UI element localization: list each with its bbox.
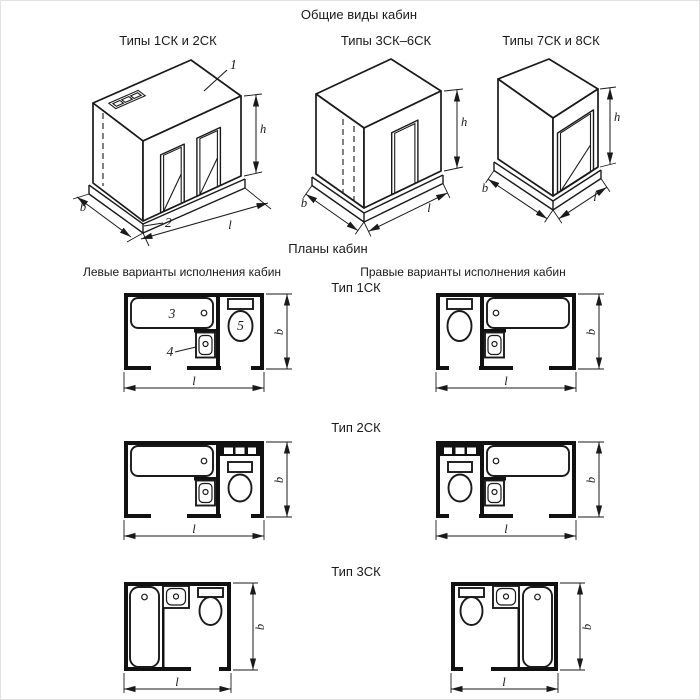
iso-view-types-3sk-6sk: h l b bbox=[291, 51, 476, 241]
dimension-width: b bbox=[266, 442, 292, 517]
plan-type-1sk-right: b l bbox=[426, 285, 616, 397]
dim-label-l: l bbox=[502, 675, 506, 689]
dim-label-h: h bbox=[614, 110, 620, 124]
iso-view-types-7sk-8sk: h b l bbox=[466, 51, 631, 236]
callout-label-2: 2 bbox=[165, 215, 172, 230]
dim-label-b: b bbox=[272, 329, 286, 335]
dimension-width: b bbox=[578, 294, 604, 369]
iso-heading-7sk-8sk: Типы 7СК и 8СК bbox=[502, 33, 600, 48]
plans-title: Планы кабин bbox=[288, 241, 367, 256]
dimension-length: l bbox=[451, 673, 558, 693]
dimension-height: h bbox=[600, 87, 620, 167]
type-2sk-heading: Тип 2СК bbox=[331, 420, 380, 435]
dim-label-b: b bbox=[80, 200, 86, 214]
dimension-width: b bbox=[578, 442, 604, 517]
dim-label-h: h bbox=[260, 122, 266, 136]
dimension-length: l bbox=[436, 520, 576, 540]
callout-label-4: 4 bbox=[167, 344, 174, 359]
dim-label-b: b bbox=[301, 196, 307, 210]
plan-type-3sk-left: b l bbox=[106, 576, 291, 698]
dim-label-b: b bbox=[584, 329, 598, 335]
dim-label-l: l bbox=[504, 522, 508, 536]
dim-label-l: l bbox=[504, 374, 508, 388]
iso-heading-3sk-6sk: Типы 3СК–6СК bbox=[341, 33, 431, 48]
callout-label-1: 1 bbox=[230, 57, 237, 72]
dim-label-b: b bbox=[584, 477, 598, 483]
dimension-length: l bbox=[124, 372, 264, 392]
cabin-box bbox=[93, 60, 241, 221]
dimension-length: l bbox=[436, 372, 576, 392]
iso-view-types-1sk-2sk: h l b 1 2 bbox=[56, 53, 286, 253]
dim-label-l: l bbox=[593, 190, 597, 204]
left-variants-heading: Левые варианты исполнения кабин bbox=[83, 265, 281, 279]
callout-label-5: 5 bbox=[237, 318, 244, 333]
dim-label-l: l bbox=[228, 218, 232, 232]
plan-type-1sk-left: 3 4 5 b l bbox=[106, 285, 296, 397]
type-3sk-heading: Тип 3СК bbox=[331, 564, 380, 579]
dim-label-b: b bbox=[272, 477, 286, 483]
right-variants-heading: Правые варианты исполнения кабин bbox=[360, 265, 566, 279]
iso-heading-1sk-2sk: Типы 1СК и 2СК bbox=[119, 33, 217, 48]
dim-label-l: l bbox=[192, 374, 196, 388]
plan-type-3sk-right: b l bbox=[436, 576, 621, 698]
dimension-height: h bbox=[444, 89, 467, 171]
page-title: Общие виды кабин bbox=[301, 7, 417, 22]
dim-label-l: l bbox=[427, 201, 431, 215]
dim-label-b: b bbox=[580, 624, 594, 630]
dim-label-l: l bbox=[192, 522, 196, 536]
dim-label-b: b bbox=[482, 181, 488, 195]
dim-label-b: b bbox=[253, 624, 267, 630]
plan-type-2sk-left: b l bbox=[106, 433, 296, 545]
dimension-length: l bbox=[124, 673, 231, 693]
cabin-box bbox=[498, 59, 598, 196]
type-1sk-heading: Тип 1СК bbox=[331, 280, 380, 295]
drawing-sheet: Общие виды кабин Типы 1СК и 2СК Типы 3СК… bbox=[0, 0, 700, 700]
callout-label-3: 3 bbox=[168, 306, 176, 321]
callout-4-washbasin: 4 bbox=[167, 344, 196, 359]
dimension-height: h bbox=[244, 94, 266, 176]
dimension-width: b bbox=[266, 294, 292, 369]
dimension-width: b bbox=[560, 583, 594, 670]
dimension-width: b bbox=[233, 583, 267, 670]
dimension-length: l bbox=[124, 520, 264, 540]
plan-type-2sk-right: b l bbox=[426, 433, 616, 545]
dim-label-l: l bbox=[175, 675, 179, 689]
